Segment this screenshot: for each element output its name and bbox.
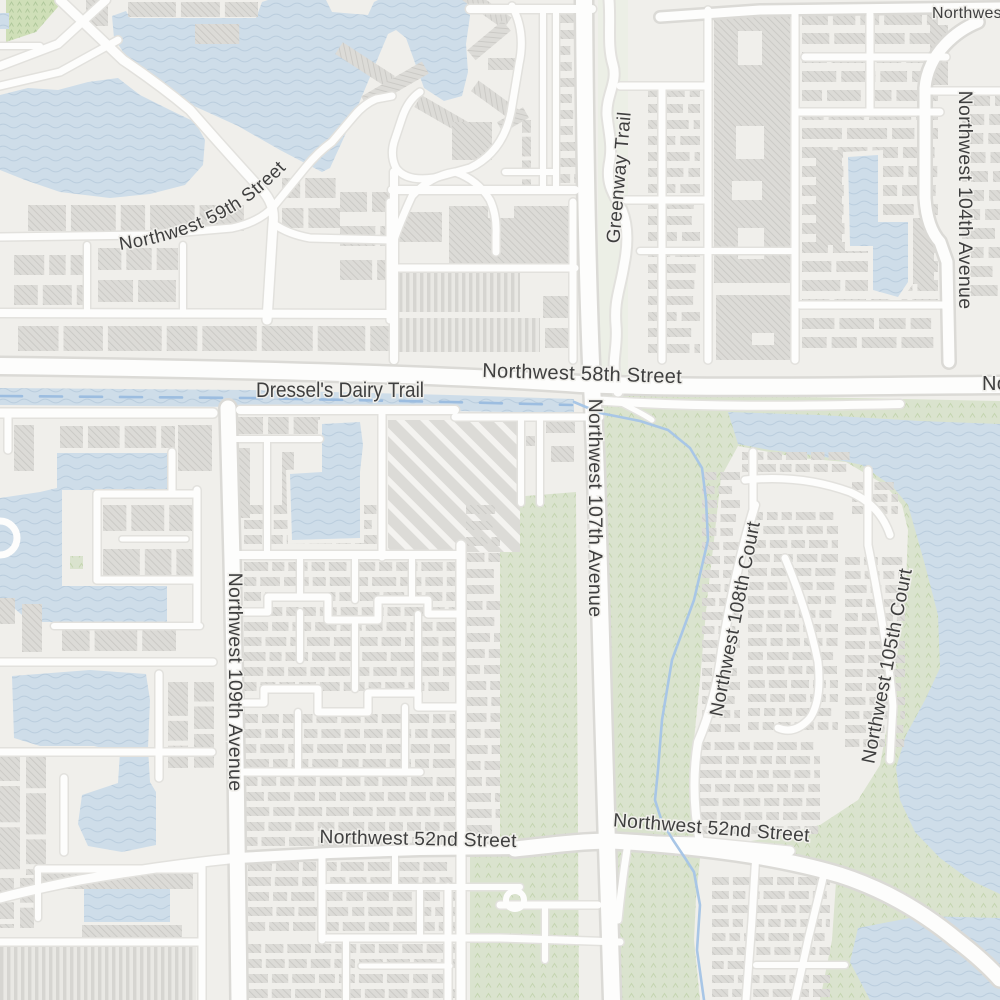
svg-text:Northwest 107th Avenue: Northwest 107th Avenue — [584, 399, 606, 618]
svg-text:Northwest 109th Avenue: Northwest 109th Avenue — [224, 573, 246, 792]
svg-text:Northwest 58th Street: Northwest 58th Street — [982, 373, 1000, 395]
svg-text:Northwest 52nd Street: Northwest 52nd Street — [319, 827, 517, 852]
svg-text:Northwest 60th Street: Northwest 60th Street — [932, 5, 1000, 22]
svg-text:Northwest 104th Avenue: Northwest 104th Avenue — [954, 91, 976, 310]
svg-text:Dressel's Dairy Trail: Dressel's Dairy Trail — [256, 378, 424, 402]
